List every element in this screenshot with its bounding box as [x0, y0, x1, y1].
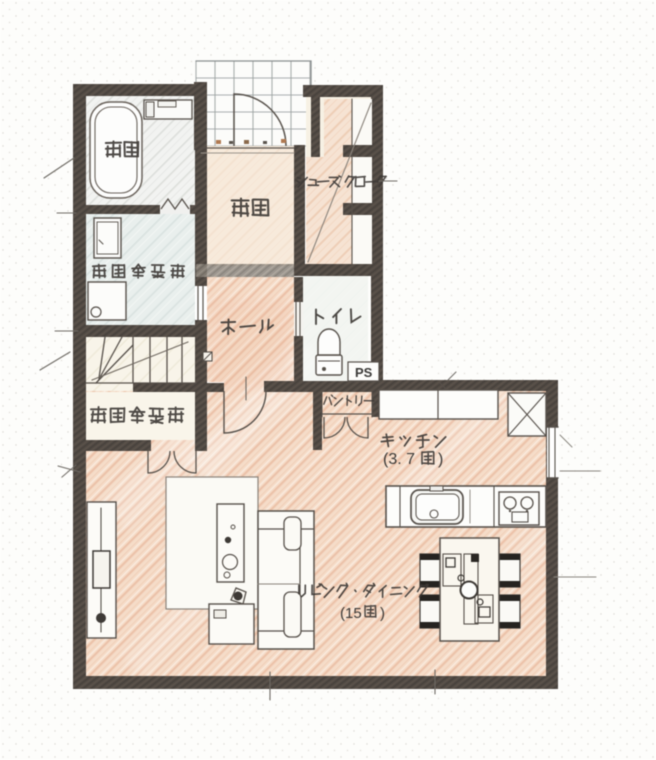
- svg-text:PS: PS: [355, 365, 373, 380]
- svg-text:(15: (15: [340, 605, 362, 622]
- svg-text:): ): [438, 451, 443, 468]
- svg-text:): ): [380, 605, 385, 622]
- svg-text:(3. 7: (3. 7: [383, 451, 415, 468]
